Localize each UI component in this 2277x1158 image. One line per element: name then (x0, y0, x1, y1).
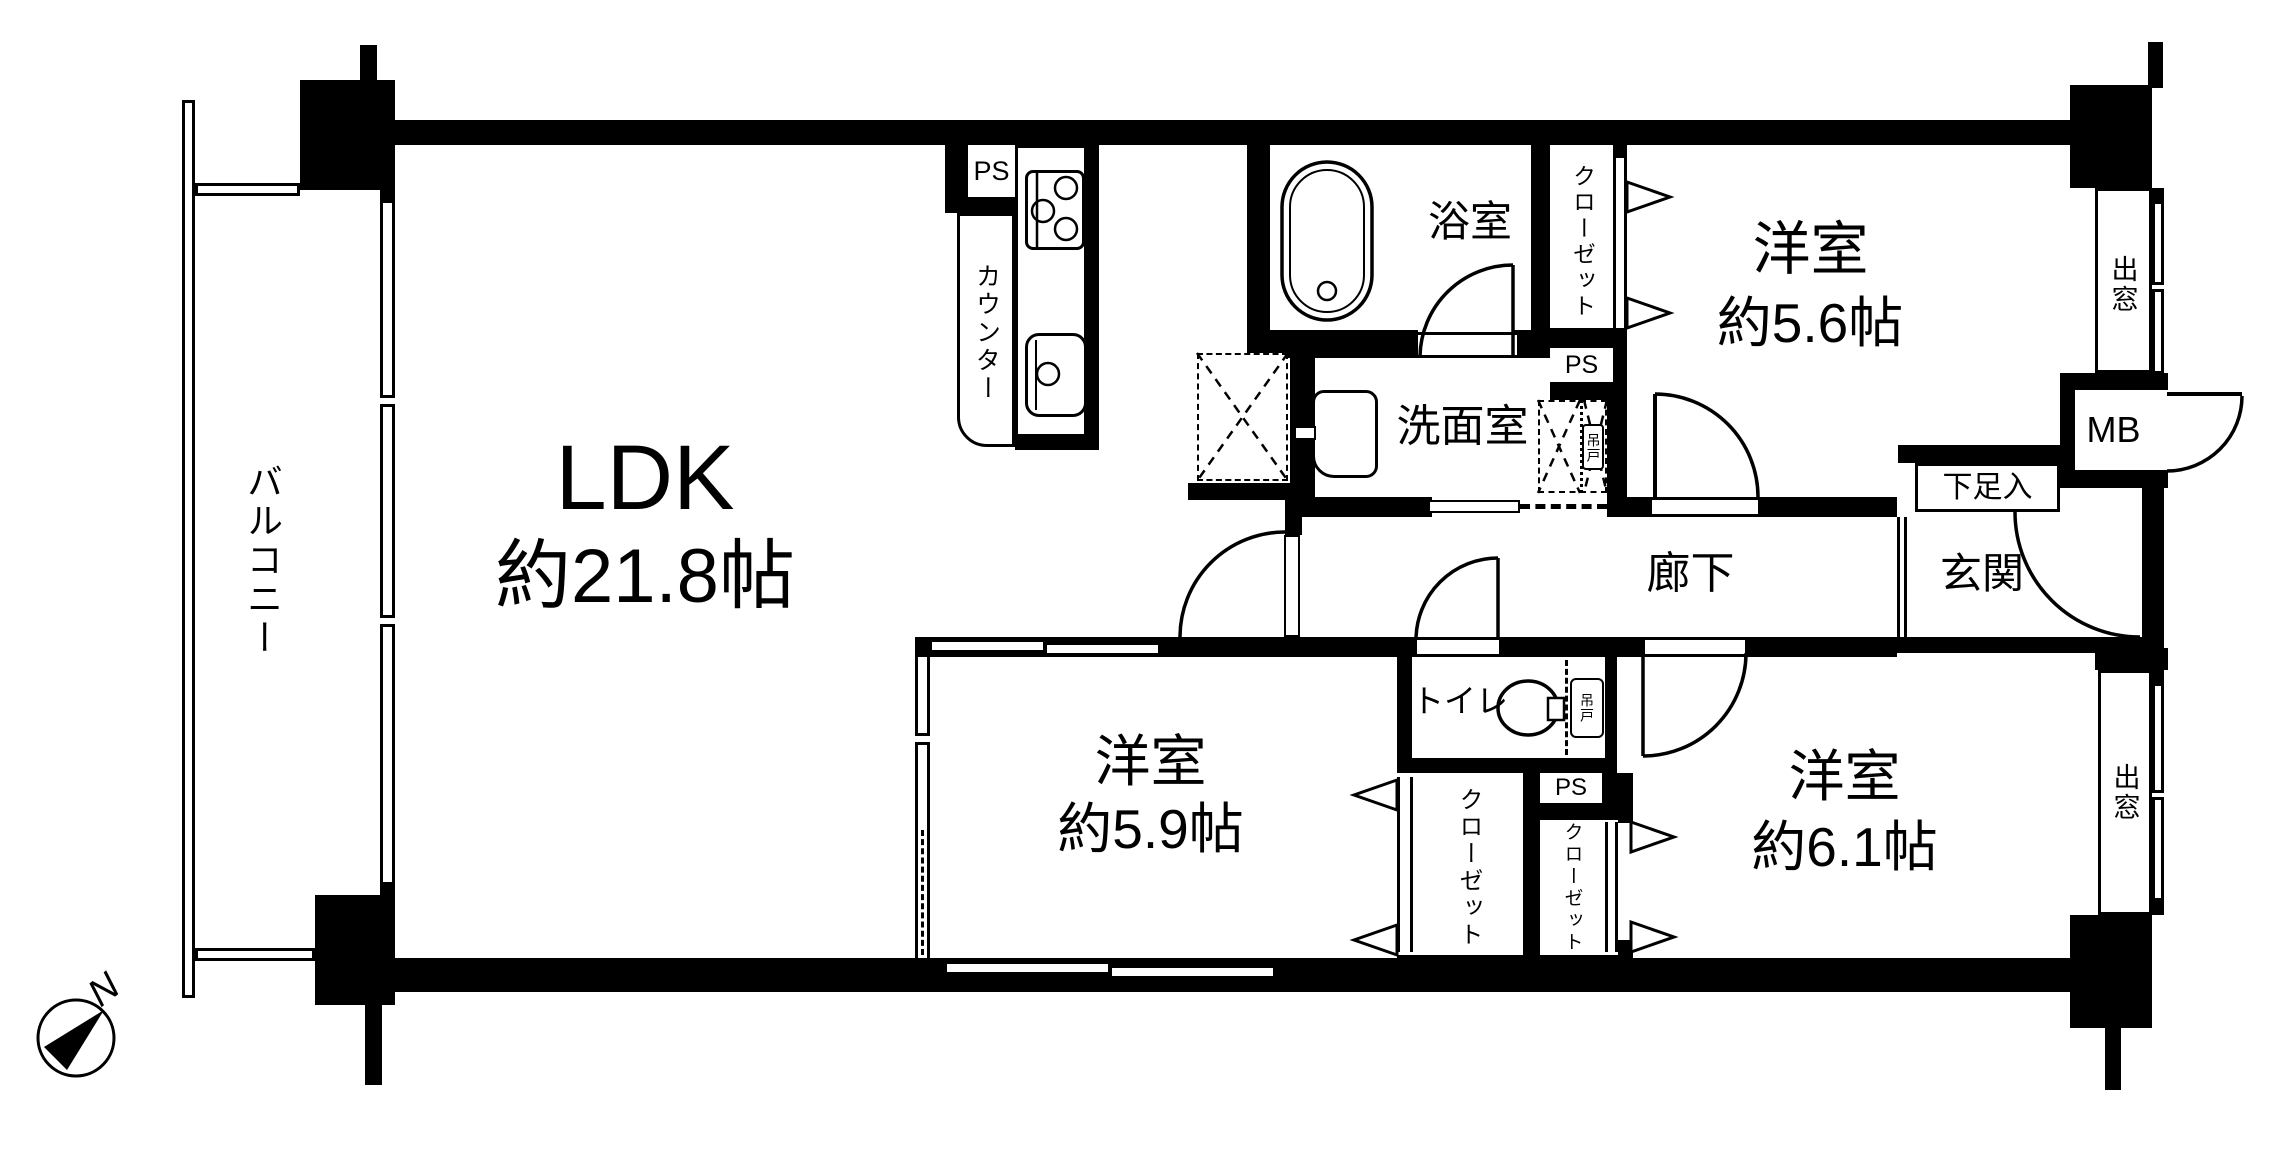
ps-label-kitchen: PS (968, 150, 1015, 192)
entrance-label: 玄関 (1922, 550, 2042, 598)
door-arc-room-se (1643, 653, 1746, 756)
ldk-size: 約21.8帖 (455, 532, 835, 622)
bathtub-inner (1290, 170, 1364, 312)
hallway-label: 廊下 (1638, 550, 1743, 598)
bath-name: 浴室 (1395, 198, 1545, 246)
hanging-cabinet-toilet-label: 吊戸 (1573, 682, 1601, 734)
stove-burner (1032, 200, 1054, 222)
closet-south-label: クローゼット (1450, 788, 1486, 948)
room-se-name: 洋室 (1752, 746, 1937, 808)
door-arc-room-ne (1655, 394, 1758, 497)
bathtub-drain (1318, 282, 1336, 300)
closet-arrow-left (1354, 780, 1397, 810)
hanging-cabinet-washroom-label: 吊戸 (1583, 426, 1604, 469)
counter-label: カウンター (965, 228, 1007, 438)
bay-window-ne-label: 出窓 (2102, 222, 2142, 348)
room-se-size: 約6.1帖 (1712, 816, 1977, 878)
ldk-name: LDK (520, 428, 770, 528)
stove-burner (1055, 177, 1077, 199)
closet-arrow-right (1631, 822, 1674, 852)
door-arc-ldk-hall (1180, 532, 1285, 637)
ps-label-mid: PS (1550, 350, 1613, 381)
washroom-name: 洗面室 (1380, 404, 1545, 450)
closet-upper-label: クローゼット (1553, 158, 1611, 326)
balcony-label: バルコニー (242, 440, 282, 680)
door-arc-entrance-outer (2167, 396, 2242, 471)
toilet-tank (1548, 698, 1564, 720)
sink-drain (1037, 363, 1059, 385)
room-s-name: 洋室 (1058, 731, 1243, 793)
closet-arrow-right (1627, 182, 1670, 212)
closet-arrow-right (1627, 298, 1670, 328)
room-s-size: 約5.9帖 (1018, 798, 1283, 860)
room-ne-size: 約5.6帖 (1675, 292, 1945, 354)
ps-label-lower: PS (1540, 774, 1602, 802)
closet-arrow-right (1631, 922, 1674, 952)
door-arc-bath (1420, 265, 1513, 356)
door-arc-toilet (1416, 558, 1498, 640)
closet-southeast-label: クローゼット (1555, 826, 1589, 950)
room-ne-name: 洋室 (1718, 218, 1903, 282)
stove-burner (1055, 218, 1077, 240)
bay-window-se-label: 出窓 (2104, 728, 2144, 858)
floor-plan: バルコニー N LDK 約21.8帖 PS カウンター 浴室 クローゼット PS… (0, 0, 2277, 1158)
toilet-name: トイレ (1414, 682, 1506, 720)
shoe-cabinet-label: 下足入 (1920, 467, 2055, 509)
meter-box-label: MB (2075, 398, 2152, 462)
closet-arrow-left (1354, 925, 1397, 955)
